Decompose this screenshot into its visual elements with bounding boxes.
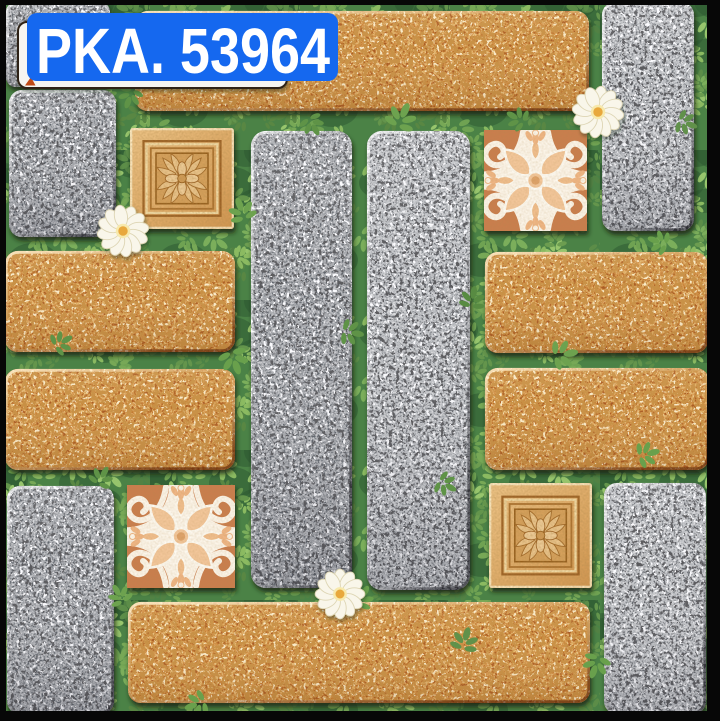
svg-text:PKA. 53964: PKA. 53964	[36, 15, 330, 87]
